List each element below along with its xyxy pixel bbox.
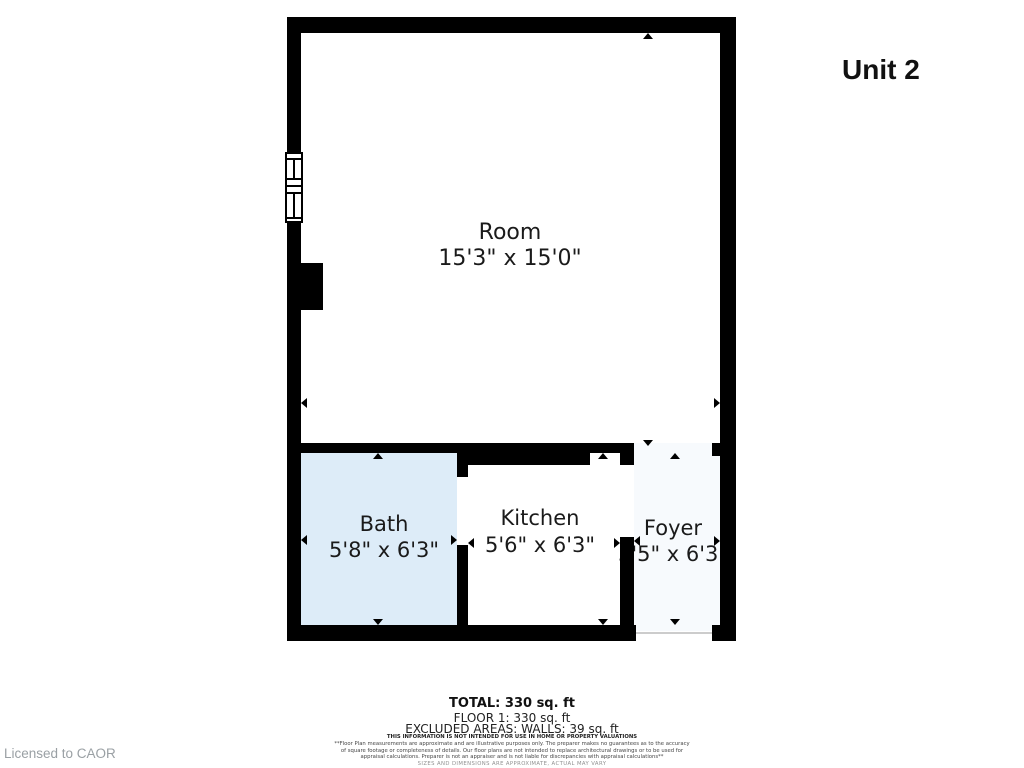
disclaimer-headline: THIS INFORMATION IS NOT INTENDED FOR USE… xyxy=(387,734,637,741)
entry-door-line xyxy=(636,632,712,634)
room-dim-arrow-down-icon xyxy=(643,440,653,446)
window-symbol xyxy=(285,152,303,223)
wall-kitchen-foyer-upper xyxy=(620,443,634,465)
room-dim-arrow-up-icon xyxy=(643,33,653,39)
kitchen-dim-arrow-up-icon xyxy=(598,453,608,459)
room-dimensions: 15'3" x 15'0" xyxy=(438,246,581,272)
disclaimer-body: **Floor Plan measurements are approximat… xyxy=(334,741,689,761)
wall-top xyxy=(287,17,736,33)
floorplan-page: Room 15'3" x 15'0" Bath 5'8" x 6'3" Kitc… xyxy=(0,0,1024,768)
kitchen-dim-arrow-left-icon xyxy=(468,538,474,548)
room-dim-arrow-left-icon xyxy=(301,398,307,408)
foyer-dim-arrow-down-icon xyxy=(670,619,680,625)
room-dim-arrow-right-icon xyxy=(714,398,720,408)
disclaimer-line: appraisal calculations. Preparer is not … xyxy=(334,754,689,761)
room-name: Room xyxy=(438,220,581,246)
foyer-dim-arrow-left-icon xyxy=(634,536,640,546)
kitchen-dim-arrow-right-icon xyxy=(614,538,620,548)
room-label: Room 15'3" x 15'0" xyxy=(438,220,581,272)
license-text: Licensed to CAOR xyxy=(4,746,116,761)
kitchen-name: Kitchen xyxy=(485,505,595,532)
foyer-dim-arrow-right-icon xyxy=(714,536,720,546)
page-title: Unit 2 xyxy=(842,54,920,86)
kitchen-dimensions: 5'6" x 6'3" xyxy=(485,532,595,559)
sizes-note: SIZES AND DIMENSIONS ARE APPROXIMATE, AC… xyxy=(418,761,607,768)
foyer-dim-arrow-up-icon xyxy=(670,453,680,459)
bath-label: Bath 5'8" x 6'3" xyxy=(329,511,439,563)
window-sash-line xyxy=(293,194,295,219)
wall-kitchen-foyer-lower xyxy=(620,537,634,641)
wall-right xyxy=(720,17,736,641)
bath-dim-arrow-right-icon xyxy=(451,535,457,545)
kitchen-label: Kitchen 5'6" x 6'3" xyxy=(485,505,595,559)
wall-left xyxy=(287,17,301,641)
bath-dim-arrow-up-icon xyxy=(373,453,383,459)
window-mullion xyxy=(287,185,301,187)
disclaimer-line: **Floor Plan measurements are approximat… xyxy=(334,741,689,748)
kitchen-dim-arrow-down-icon xyxy=(598,619,608,625)
wall-kitchen-top xyxy=(457,453,590,465)
window-sash-line xyxy=(293,158,295,180)
bath-dim-arrow-down-icon xyxy=(373,619,383,625)
wall-pillar xyxy=(301,263,323,310)
wall-bottom-right-span xyxy=(712,625,736,641)
wall-bath-kitchen-upper xyxy=(457,443,468,477)
wall-entry-stub xyxy=(712,443,722,456)
bath-name: Bath xyxy=(329,511,439,537)
wall-bath-kitchen-lower xyxy=(457,545,468,641)
bath-dim-arrow-left-icon xyxy=(301,535,307,545)
disclaimer-line: of square footage or completeness of det… xyxy=(334,748,689,755)
bath-dimensions: 5'8" x 6'3" xyxy=(329,537,439,563)
total-area-text: TOTAL: 330 sq. ft xyxy=(449,696,575,711)
